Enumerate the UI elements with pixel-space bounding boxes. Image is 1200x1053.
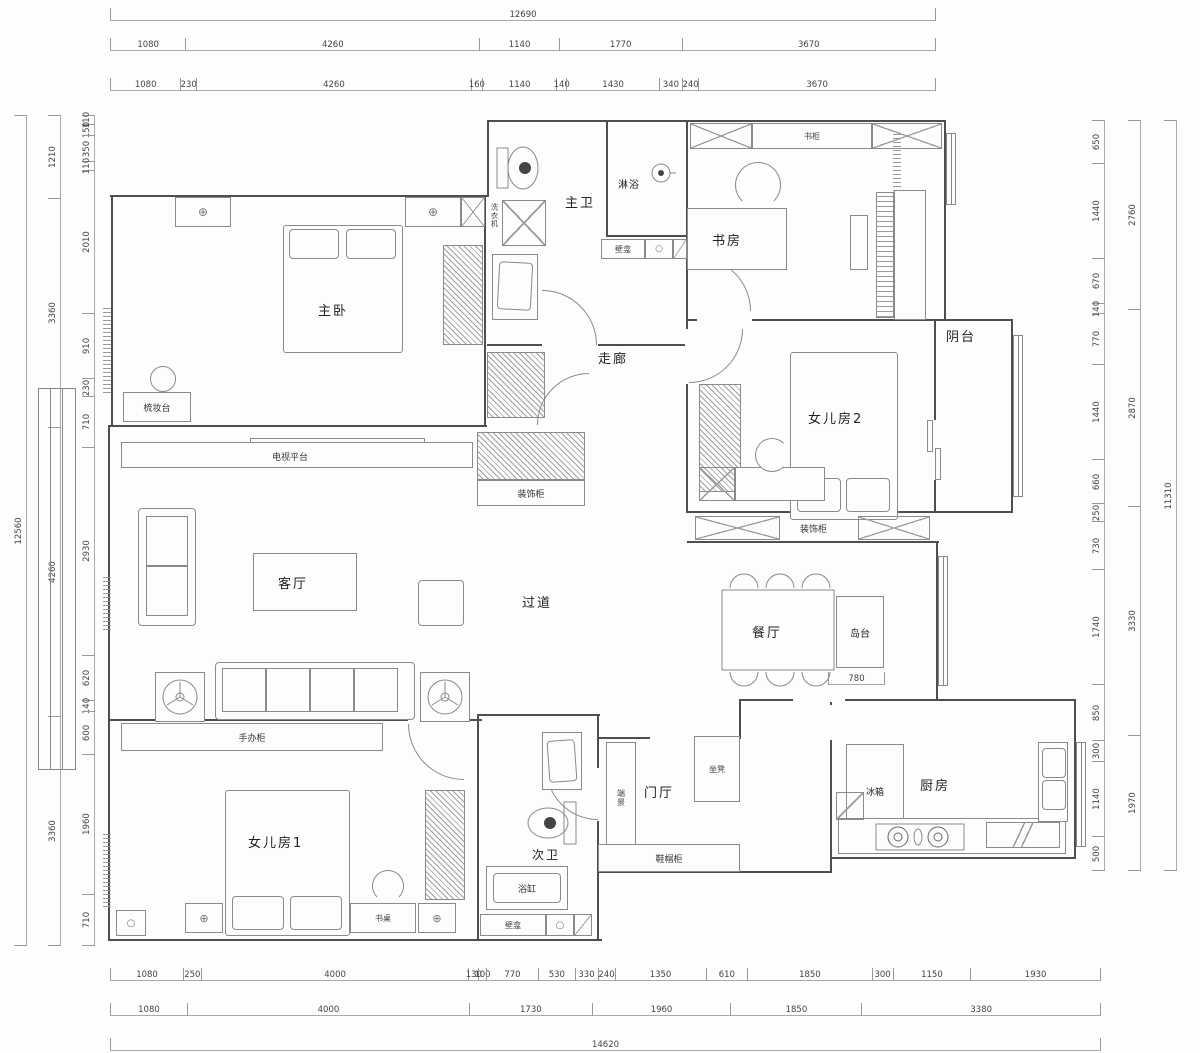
deco-cabinet-label: 装饰柜 — [800, 522, 827, 535]
dimension-segment: 3330 — [1128, 506, 1141, 734]
dimension-segment: 330 — [575, 968, 598, 981]
room-label-foyer: 门厅 — [644, 782, 674, 801]
dim-chain-right-total: 11310 — [1164, 120, 1177, 871]
dimension-segment: 3670 — [682, 38, 935, 51]
dimension-value: 350 — [83, 141, 92, 157]
desk-label: 书桌 — [375, 913, 391, 924]
dimension-value: 1150 — [921, 971, 943, 980]
basin: ○ — [546, 914, 574, 936]
door-opening — [793, 698, 845, 702]
tv — [250, 438, 425, 443]
dimension-value: 500 — [1093, 846, 1102, 862]
dimension-segment: 1430 — [566, 78, 659, 91]
corner-cabinet — [836, 792, 864, 820]
desk-daughter1: 书桌 — [350, 903, 416, 933]
dimension-value: 2010 — [83, 231, 92, 253]
wall — [477, 714, 479, 941]
room-label-kitchen: 厨房 — [920, 775, 950, 794]
wall — [108, 939, 602, 941]
dimension-segment: 250 — [1092, 503, 1105, 520]
wardrobe-hatch — [425, 790, 465, 900]
wall — [484, 195, 486, 427]
dimension-segment: 1080 — [110, 968, 183, 981]
room-label-master-bedroom: 主卧 — [318, 300, 348, 319]
dimension-segment: 2930 — [82, 447, 95, 655]
dimension-value: 3330 — [1129, 610, 1138, 632]
dimension-value: 250 — [184, 971, 200, 980]
niche: 壁龛 — [480, 914, 546, 936]
dimension-segment: 140 — [556, 78, 566, 91]
fan-icon — [161, 678, 199, 716]
wall — [739, 699, 741, 739]
dimension-value: 340 — [663, 81, 679, 90]
deco-cabinet-end — [858, 516, 930, 540]
shower-head-icon — [650, 162, 676, 184]
dimension-segment: 610 — [706, 968, 748, 981]
dimension-segment: 1080 — [110, 78, 180, 91]
pillow — [346, 229, 396, 259]
wall — [945, 319, 1013, 321]
wall — [487, 120, 489, 197]
dimension-value: 12560 — [15, 517, 24, 544]
dimension-segment: 530 — [538, 968, 574, 981]
dimension-segment: 660 — [1092, 459, 1105, 503]
sliding-door — [927, 420, 933, 452]
window — [1013, 335, 1023, 497]
dimension-segment: 3670 — [698, 78, 935, 91]
dimension-segment: 1140 — [1092, 761, 1105, 836]
bath-sink — [497, 261, 533, 311]
pillow — [289, 229, 339, 259]
dim-chain-bottom-detail: 1080250400013010077053033024013506101850… — [110, 968, 1101, 981]
dimension-segment: 1150 — [893, 968, 971, 981]
dimension-segment: 2760 — [1128, 120, 1141, 309]
armchair-cushion — [146, 566, 188, 616]
deco-cabinet-hatch — [477, 432, 585, 480]
dimension-value: 620 — [83, 670, 92, 686]
dimension-segment: 730 — [1092, 521, 1105, 570]
island-label: 岛台 — [850, 625, 870, 640]
dimension-value: 1960 — [651, 1006, 673, 1015]
figure-cabinet: 手办柜 — [121, 723, 383, 751]
dimension-segment: 4000 — [201, 968, 469, 981]
wall — [597, 714, 599, 941]
dimension-value: 4000 — [318, 1006, 340, 1015]
stool — [150, 366, 176, 392]
dimension-value: 300 — [874, 971, 890, 980]
dimension-segment: 1960 — [82, 754, 95, 894]
desk-daughter2 — [735, 467, 825, 501]
dimension-segment: 1960 — [592, 1003, 731, 1016]
dimension-segment: 2870 — [1128, 309, 1141, 506]
dimension-value: 2760 — [1129, 204, 1138, 226]
radiator — [103, 832, 111, 907]
room-label-hallway: 走廊 — [598, 348, 628, 367]
bathtub-label: 浴缸 — [518, 882, 536, 895]
dimension-segment: 650 — [1092, 120, 1105, 163]
basin: ○ — [645, 239, 673, 259]
window — [946, 133, 956, 205]
dimension-segment: 150 — [82, 124, 95, 136]
dimension-value: 4260 — [322, 41, 344, 50]
dimension-value: 600 — [83, 725, 92, 741]
chair — [755, 438, 789, 472]
dimension-segment: 1140 — [482, 78, 556, 91]
dimension-value: 240 — [682, 81, 698, 90]
bath2-sink — [547, 739, 578, 783]
dimension-segment: 300 — [872, 968, 893, 981]
dimension-value: 2870 — [1129, 397, 1138, 419]
dimension-value: 1080 — [137, 41, 159, 50]
wall — [830, 857, 1076, 859]
dimension-value: 11310 — [1165, 482, 1174, 509]
dimension-value: 1140 — [509, 41, 531, 50]
dimension-value: 1850 — [786, 1006, 808, 1015]
dimension-segment: 3380 — [861, 1003, 1100, 1016]
dim-chain-top-detail: 10802304260160114014014303402403670 — [110, 78, 936, 91]
pillow — [290, 896, 342, 930]
dimension-value: 1440 — [1093, 201, 1102, 223]
room-label-shower: 淋浴 — [618, 176, 640, 191]
dimension-segment: 1730 — [469, 1003, 592, 1016]
door-arc — [408, 724, 464, 780]
dimension-value: 1080 — [135, 81, 157, 90]
window — [938, 556, 948, 686]
dresser-label: 梳妆台 — [143, 401, 170, 414]
deco-cabinet-end — [695, 516, 780, 540]
dimension-value: 3670 — [798, 41, 820, 50]
shelf — [673, 239, 687, 259]
shoe-cabinet: 鞋帽柜 — [598, 844, 740, 872]
dimension-segment: 2010 — [82, 170, 95, 313]
dimension-value: 710 — [83, 414, 92, 430]
cutting-board — [986, 822, 1060, 848]
dimension-value: 1970 — [1129, 792, 1138, 814]
wall — [740, 699, 1076, 701]
wall — [935, 511, 1013, 513]
dimension-segment: 240 — [598, 968, 615, 981]
dimension-segment: 770 — [486, 968, 538, 981]
dimension-segment: 1440 — [1092, 163, 1105, 258]
wall — [478, 714, 600, 716]
dimension-segment: 620 — [82, 655, 95, 700]
chair — [735, 162, 781, 208]
room-label-passage: 过道 — [522, 592, 552, 611]
dimension-value: 3380 — [970, 1006, 992, 1015]
dimension-value: 2930 — [83, 541, 92, 563]
dimension-value: 610 — [719, 971, 735, 980]
radiator — [103, 308, 111, 393]
room-label-balcony: 阴台 — [946, 326, 976, 345]
room-label-master-bath: 主卫 — [565, 192, 595, 211]
dimension-segment: 500 — [1092, 836, 1105, 870]
dimension-value: 14620 — [592, 1041, 619, 1050]
deco-cabinet: 装饰柜 — [477, 480, 585, 506]
dimension-segment: 1850 — [747, 968, 871, 981]
floor-plan-page: { "plan": { "rooms": { "master_bedroom":… — [0, 0, 1200, 1053]
washing-machine — [502, 200, 546, 246]
dimension-segment: 710 — [82, 894, 95, 945]
end-feature-cabinet: 端景 — [606, 742, 636, 854]
dimension-segment: 1210 — [48, 115, 61, 198]
bench: 坐凳 — [694, 736, 740, 802]
dimension-value: 1140 — [1093, 788, 1102, 810]
dimension-segment: 14620 — [110, 1038, 1100, 1051]
toilet-icon — [495, 138, 541, 198]
room-label-study: 书房 — [712, 230, 742, 249]
sofa-cushion — [310, 668, 354, 712]
door-opening — [829, 705, 833, 740]
dimension-value: 4000 — [324, 971, 346, 980]
wall — [687, 541, 939, 543]
dimension-segment: 140 — [1092, 303, 1105, 313]
dim-chain-bottom-total: 14620 — [110, 1038, 1101, 1051]
nightstand: ⊕ — [418, 903, 456, 933]
dimension-value: 1430 — [602, 81, 624, 90]
dimension-segment: 770 — [1092, 313, 1105, 364]
bookcase — [690, 123, 752, 149]
dimension-value: 670 — [1093, 273, 1102, 289]
dimension-value: 4260 — [323, 81, 345, 90]
dimension-segment: 1140 — [479, 38, 558, 51]
toilet-icon — [522, 800, 580, 846]
shelf — [574, 914, 592, 936]
door-arc — [542, 290, 597, 345]
dimension-segment: 1080 — [110, 38, 185, 51]
dimension-value: 770 — [1093, 331, 1102, 347]
washing-machine-label: 洗衣机 — [490, 203, 500, 227]
niche-label: 壁龛 — [615, 244, 631, 255]
dimension-value: 250 — [1093, 505, 1102, 521]
dimension-value: 650 — [1093, 134, 1102, 150]
dim-chain-left-total: 12560 — [14, 115, 27, 946]
window — [38, 388, 76, 770]
dimension-segment: 1850 — [730, 1003, 861, 1016]
cabinet — [699, 467, 735, 501]
dimension-segment: 340 — [659, 78, 682, 91]
dresser: 梳妆台 — [123, 392, 191, 422]
end-feature-label: 端景 — [616, 789, 627, 807]
dimension-segment: 240 — [682, 78, 698, 91]
sofa-cushion — [266, 668, 310, 712]
sofa-cushion — [354, 668, 398, 712]
dimension-segment: 12560 — [14, 115, 27, 945]
dimension-value: 330 — [578, 971, 594, 980]
dimension-value: 660 — [1093, 474, 1102, 490]
dimension-value: 1740 — [1093, 616, 1102, 638]
dimension-value: 710 — [83, 912, 92, 928]
dimension-value: 850 — [1093, 705, 1102, 721]
corner-unit: ○ — [116, 910, 146, 936]
nightstand: ⊕ — [185, 903, 223, 933]
armchair-cushion — [146, 516, 188, 566]
bookcase — [872, 123, 942, 149]
dimension-value: 3670 — [806, 81, 828, 90]
bathtub: 浴缸 — [486, 866, 568, 910]
wall — [108, 425, 487, 427]
cabinet — [461, 197, 485, 227]
dim-chain-right-mid: 2760287033301970 — [1128, 120, 1141, 871]
dimension-value: 1930 — [1025, 971, 1047, 980]
dim-chain-top-mid: 10804260114017703670 — [110, 38, 936, 51]
dimension-value: 230 — [181, 81, 197, 90]
piano-body — [894, 190, 926, 320]
dimension-segment: 4260 — [196, 78, 471, 91]
room-label-dining: 餐厅 — [752, 622, 782, 641]
figure-cabinet-label: 手办柜 — [238, 731, 265, 744]
dimension-segment: 600 — [82, 711, 95, 754]
dimension-segment: 4000 — [187, 1003, 469, 1016]
dimension-segment: 140 — [82, 700, 95, 711]
dimension-value: 770 — [504, 971, 520, 980]
piano-keys — [876, 192, 894, 318]
bench-label: 坐凳 — [709, 764, 725, 775]
dimension-segment: 1440 — [1092, 364, 1105, 459]
room-label-second-bath: 次卫 — [532, 846, 560, 863]
sliding-door — [935, 448, 941, 480]
dimension-segment: 850 — [1092, 684, 1105, 740]
wardrobe: ⊕ — [175, 197, 231, 227]
wall — [111, 195, 113, 427]
dimension-segment: 100 — [478, 968, 486, 981]
dimension-segment: 710 — [82, 396, 95, 447]
dimension-segment: 230 — [82, 378, 95, 395]
pillow — [232, 896, 284, 930]
dimension-value: 230 — [83, 379, 92, 395]
dimension-segment: 1740 — [1092, 569, 1105, 684]
dimension-segment: 1080 — [110, 1003, 187, 1016]
dimension-value: 1080 — [136, 971, 158, 980]
radiator — [103, 575, 111, 630]
dimension-value: 780 — [848, 675, 864, 684]
wall — [487, 120, 946, 122]
tv-platform-label: 电视平台 — [272, 450, 308, 463]
dimension-value: 1850 — [799, 971, 821, 980]
dimension-value: 910 — [83, 338, 92, 354]
dimension-value: 3360 — [49, 820, 58, 842]
deco-cabinet-label: 装饰柜 — [517, 487, 544, 500]
dimension-value: 1960 — [83, 814, 92, 836]
wall — [934, 319, 936, 513]
dim-chain-right-detail: 6501440670140770144066025073017408503001… — [1092, 120, 1105, 871]
dimension-segment: 11310 — [1164, 120, 1177, 870]
bookcase: 书柜 — [752, 123, 872, 149]
dimension-value: 1080 — [138, 1006, 160, 1015]
dimension-segment: 160 — [471, 78, 482, 91]
dim-chain-bottom-mid: 108040001730196018503380 — [110, 1003, 1101, 1016]
kitchen-sink — [1042, 780, 1066, 810]
bookcase-label: 书柜 — [804, 131, 820, 142]
pillow — [846, 478, 890, 512]
dimension-segment: 300 — [1092, 740, 1105, 761]
dimension-value: 1140 — [509, 81, 531, 90]
fan-icon — [426, 678, 464, 716]
dimension-segment: 1350 — [615, 968, 706, 981]
chair — [372, 870, 404, 902]
dimension-value: 240 — [598, 971, 614, 980]
sofa-cushion — [222, 668, 266, 712]
dimension-value: 300 — [1093, 743, 1102, 759]
dimension-value: 1770 — [610, 41, 632, 50]
dim-chain-top-total: 12690 — [110, 8, 936, 21]
dimension-segment: 1970 — [1128, 735, 1141, 870]
closet-hatch — [443, 245, 483, 345]
dimension-segment: 1930 — [970, 968, 1100, 981]
dimension-segment: 12690 — [110, 8, 935, 21]
dimension-value: 530 — [549, 971, 565, 980]
room-label-daughter2: 女儿房2 — [808, 408, 863, 427]
dimension-segment: 1770 — [559, 38, 682, 51]
dimension-value: 1440 — [1093, 402, 1102, 424]
wall — [598, 737, 650, 739]
piano-bench — [850, 215, 868, 270]
niche: 壁龛 — [601, 239, 645, 259]
dimension-segment: 230 — [180, 78, 196, 91]
dimension-value: 1210 — [49, 146, 58, 168]
wardrobe: ⊕ — [405, 197, 461, 227]
kitchen-sink — [1042, 748, 1066, 778]
wall — [606, 120, 608, 237]
shoe-cabinet-label: 鞋帽柜 — [655, 852, 682, 865]
door-opening — [697, 318, 752, 322]
stove-icon — [876, 822, 964, 852]
dimension-segment: 910 — [82, 313, 95, 378]
dimension-value: 730 — [1093, 537, 1102, 553]
dimension-segment: 670 — [1092, 258, 1105, 303]
dimension-value: 1730 — [520, 1006, 542, 1015]
dimension-segment: 4260 — [185, 38, 479, 51]
room-label-daughter1: 女儿房1 — [248, 832, 303, 851]
closet-hatch — [487, 352, 545, 418]
dim-chain-left-detail: 1101503501102010910230710293062014060019… — [82, 115, 95, 946]
dimension-segment: 250 — [183, 968, 201, 981]
wall — [606, 235, 688, 237]
window — [1076, 742, 1086, 847]
dimension-value: 3360 — [49, 302, 58, 324]
side-table — [418, 580, 464, 626]
dimension-value: 1350 — [650, 971, 672, 980]
door-arc — [689, 329, 743, 383]
dimension-segment: 110 — [82, 161, 95, 170]
kitchen-island: 岛台 — [836, 596, 884, 668]
niche-label: 壁龛 — [505, 920, 521, 931]
dimension-value: 12690 — [509, 11, 536, 20]
fridge-label: 冰箱 — [866, 785, 884, 798]
room-label-living: 客厅 — [278, 573, 308, 592]
